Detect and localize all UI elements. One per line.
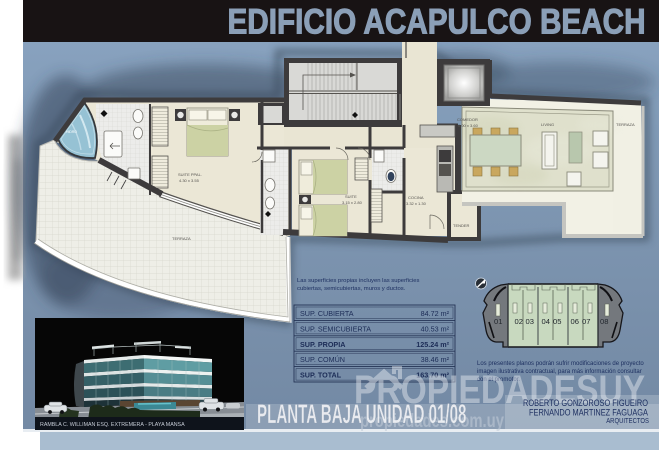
svg-text:TERRAZA: TERRAZA — [172, 236, 191, 241]
svg-text:LIVING: LIVING — [541, 122, 554, 127]
svg-text:cubiertas, semicubiertas, muro: cubiertas, semicubiertas, muros y ductos… — [297, 286, 406, 292]
svg-text:07: 07 — [582, 317, 590, 326]
svg-text:04: 04 — [542, 317, 550, 326]
svg-text:FERNANDO MARTINEZ FAGUAGA: FERNANDO MARTINEZ FAGUAGA — [529, 407, 648, 418]
svg-text:SUP. CUBIERTA: SUP. CUBIERTA — [300, 309, 354, 318]
svg-text:06: 06 — [571, 317, 579, 326]
svg-text:08: 08 — [600, 317, 608, 326]
svg-text:3.32 x 1.30: 3.32 x 1.30 — [406, 201, 427, 206]
svg-text:6.00 x 3.60: 6.00 x 3.60 — [458, 123, 479, 128]
svg-text:40.53 m²: 40.53 m² — [421, 324, 450, 333]
svg-text:3.15 x 2.80: 3.15 x 2.80 — [342, 200, 363, 205]
svg-text:03: 03 — [526, 317, 534, 326]
svg-text:ARQUITECTOS: ARQUITECTOS — [606, 418, 649, 426]
svg-text:84.72 m²: 84.72 m² — [421, 309, 450, 318]
svg-text:HIDRO: HIDRO — [66, 130, 77, 134]
svg-text:4.30 x 3.55: 4.30 x 3.55 — [179, 178, 200, 183]
svg-text:SUITE: SUITE — [345, 194, 357, 199]
svg-text:RAMBLA C. WILLIMAN ESQ. EXTREM: RAMBLA C. WILLIMAN ESQ. EXTREMERA - PLAY… — [40, 422, 185, 428]
svg-text:SUITE PPAL.: SUITE PPAL. — [178, 172, 202, 177]
svg-text:05: 05 — [553, 317, 561, 326]
svg-text:01: 01 — [494, 317, 502, 326]
svg-text:TENDER: TENDER — [453, 223, 470, 228]
svg-text:EDIFICIO ACAPULCO BEACH: EDIFICIO ACAPULCO BEACH — [228, 2, 646, 41]
svg-text:TERRAZA: TERRAZA — [616, 122, 635, 127]
svg-text:Los presentes planos podrán su: Los presentes planos podrán sufrir modif… — [477, 361, 644, 367]
svg-text:SUP. SEMICUBIERTA: SUP. SEMICUBIERTA — [300, 324, 371, 333]
svg-text:PLANTA BAJA UNIDAD 01/08: PLANTA BAJA UNIDAD 01/08 — [257, 398, 466, 429]
svg-text:SUP. TOTAL: SUP. TOTAL — [300, 371, 342, 380]
svg-text:Las superficies propias incluy: Las superficies propias incluyen las sup… — [297, 278, 420, 284]
svg-text:38.46 m²: 38.46 m² — [421, 355, 450, 364]
svg-text:125.24 m²: 125.24 m² — [416, 340, 449, 349]
svg-text:SUP. PROPIA: SUP. PROPIA — [300, 340, 345, 349]
svg-text:SUP. COMÚN: SUP. COMÚN — [300, 355, 345, 364]
svg-text:02: 02 — [515, 317, 523, 326]
svg-text:COCINA: COCINA — [408, 195, 424, 200]
svg-text:COMEDOR: COMEDOR — [457, 117, 478, 122]
